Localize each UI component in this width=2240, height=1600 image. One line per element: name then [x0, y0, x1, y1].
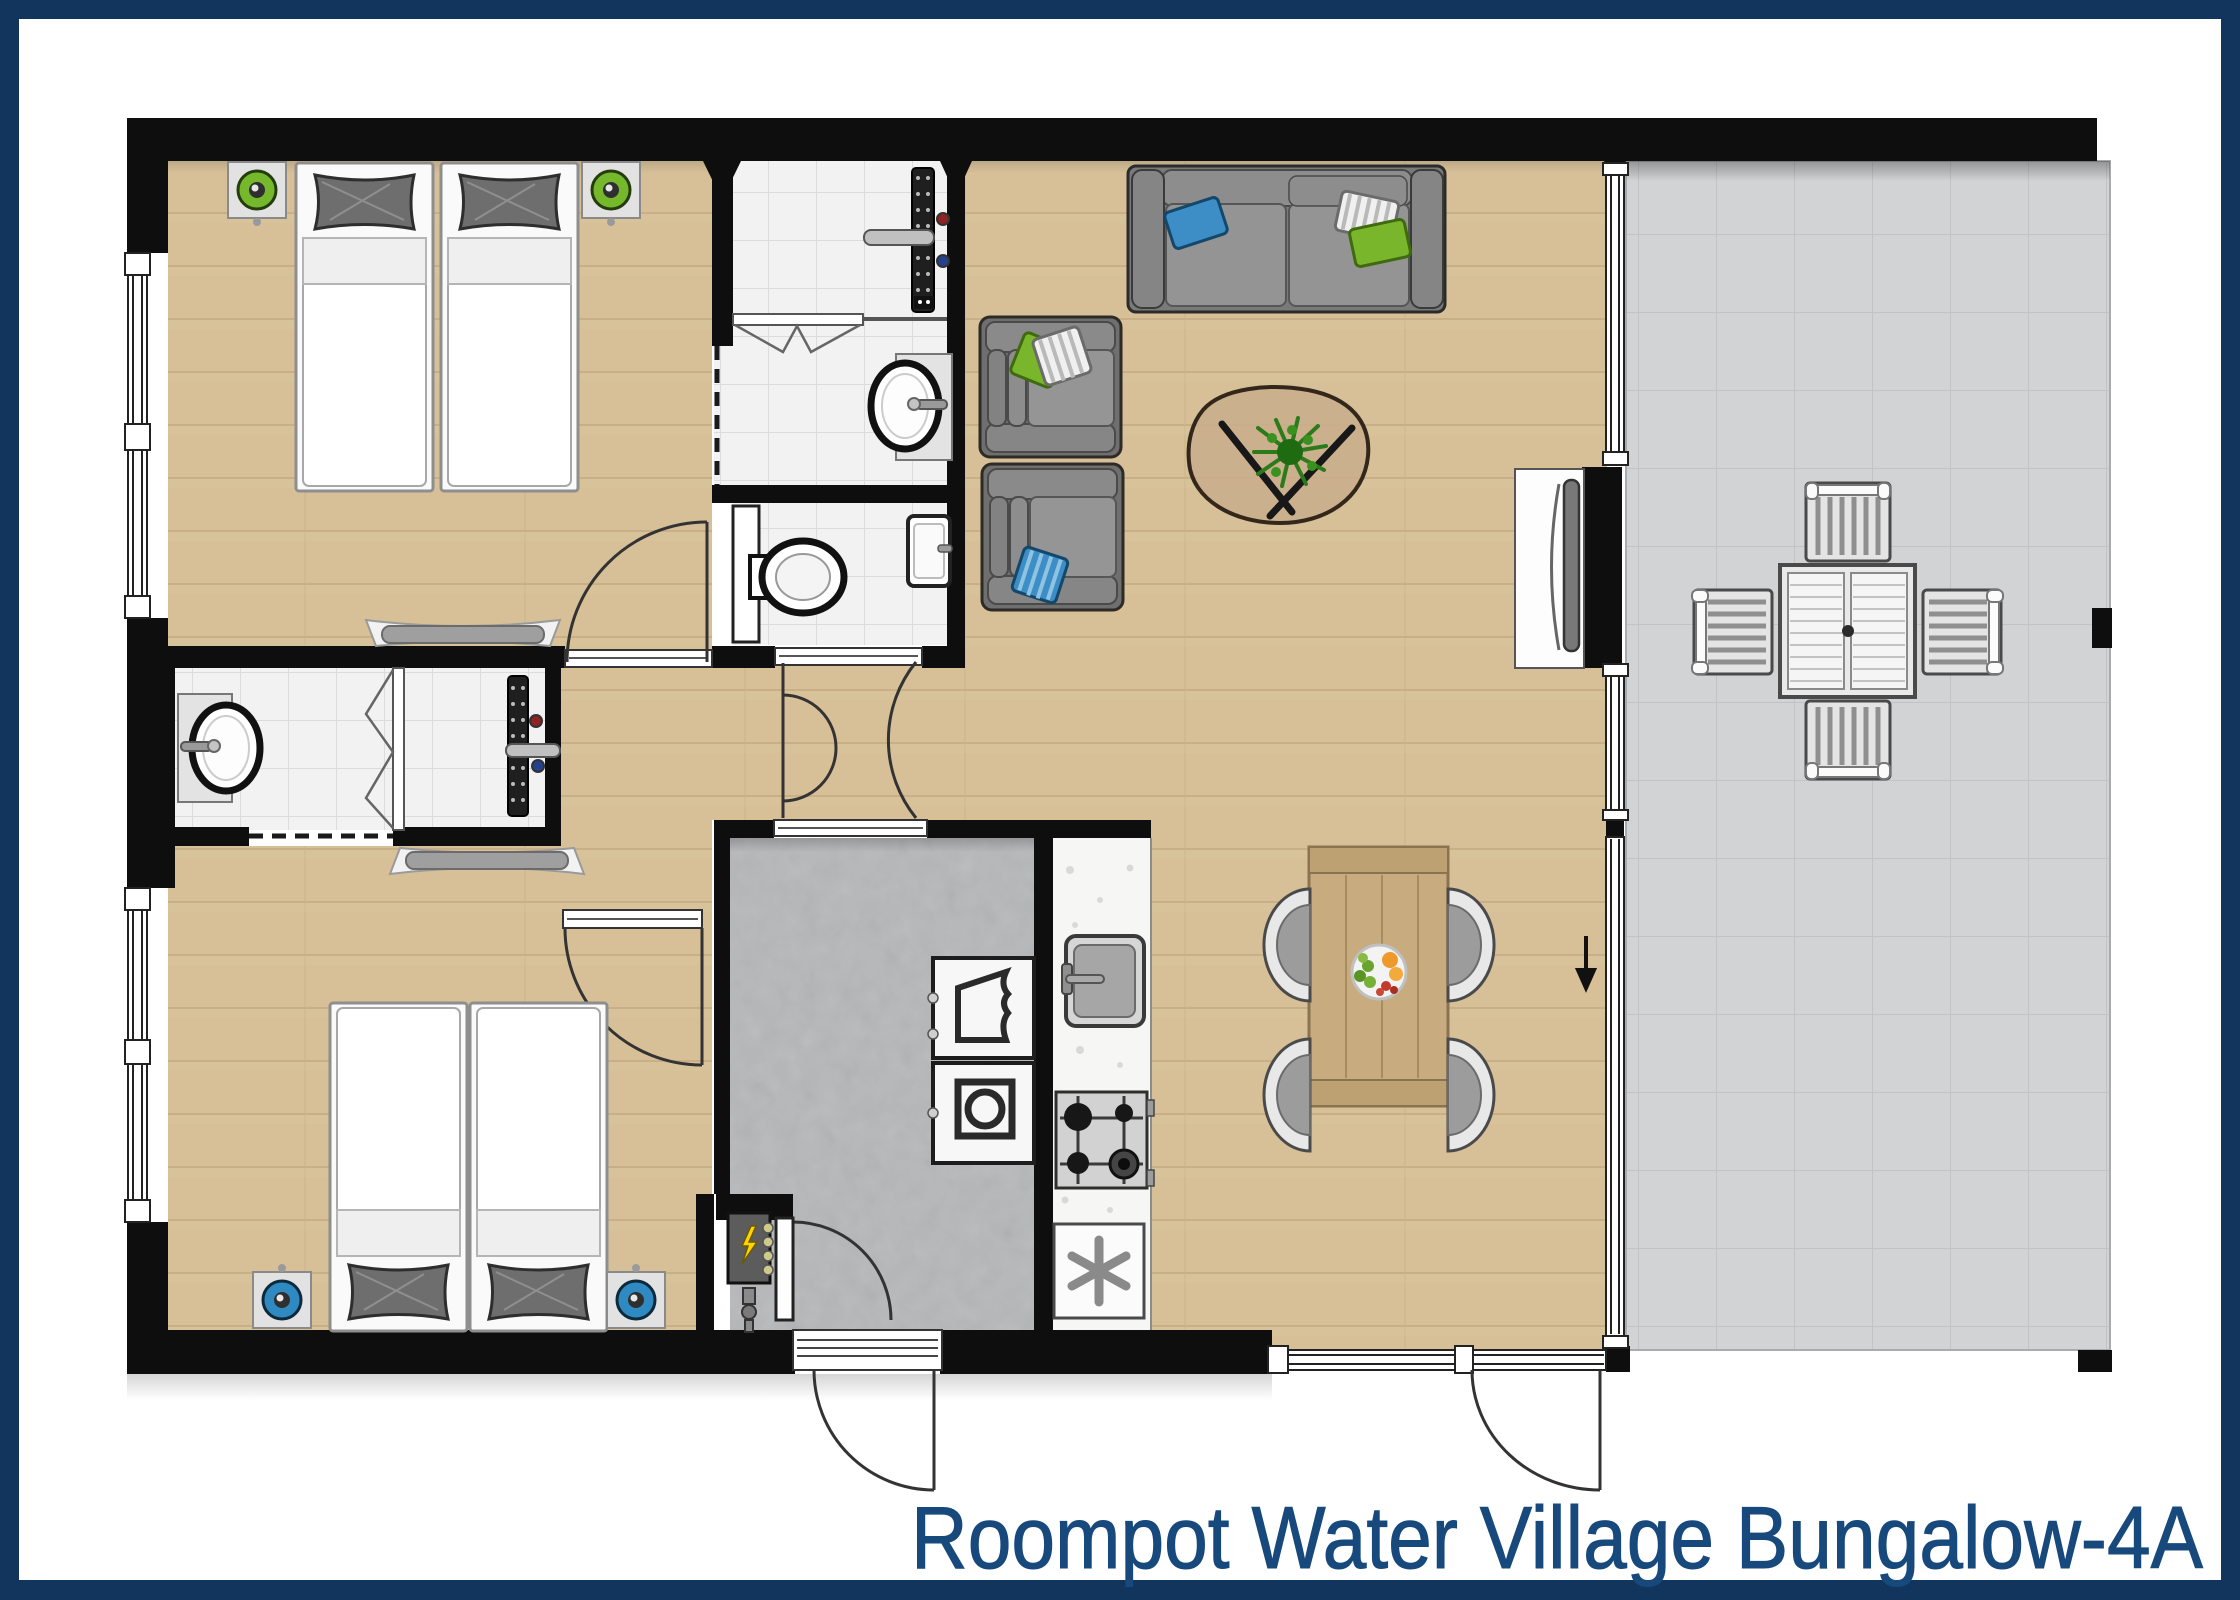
svg-text:Roompot Water Village Bungalow: Roompot Water Village Bungalow-4A [911, 1488, 2203, 1587]
